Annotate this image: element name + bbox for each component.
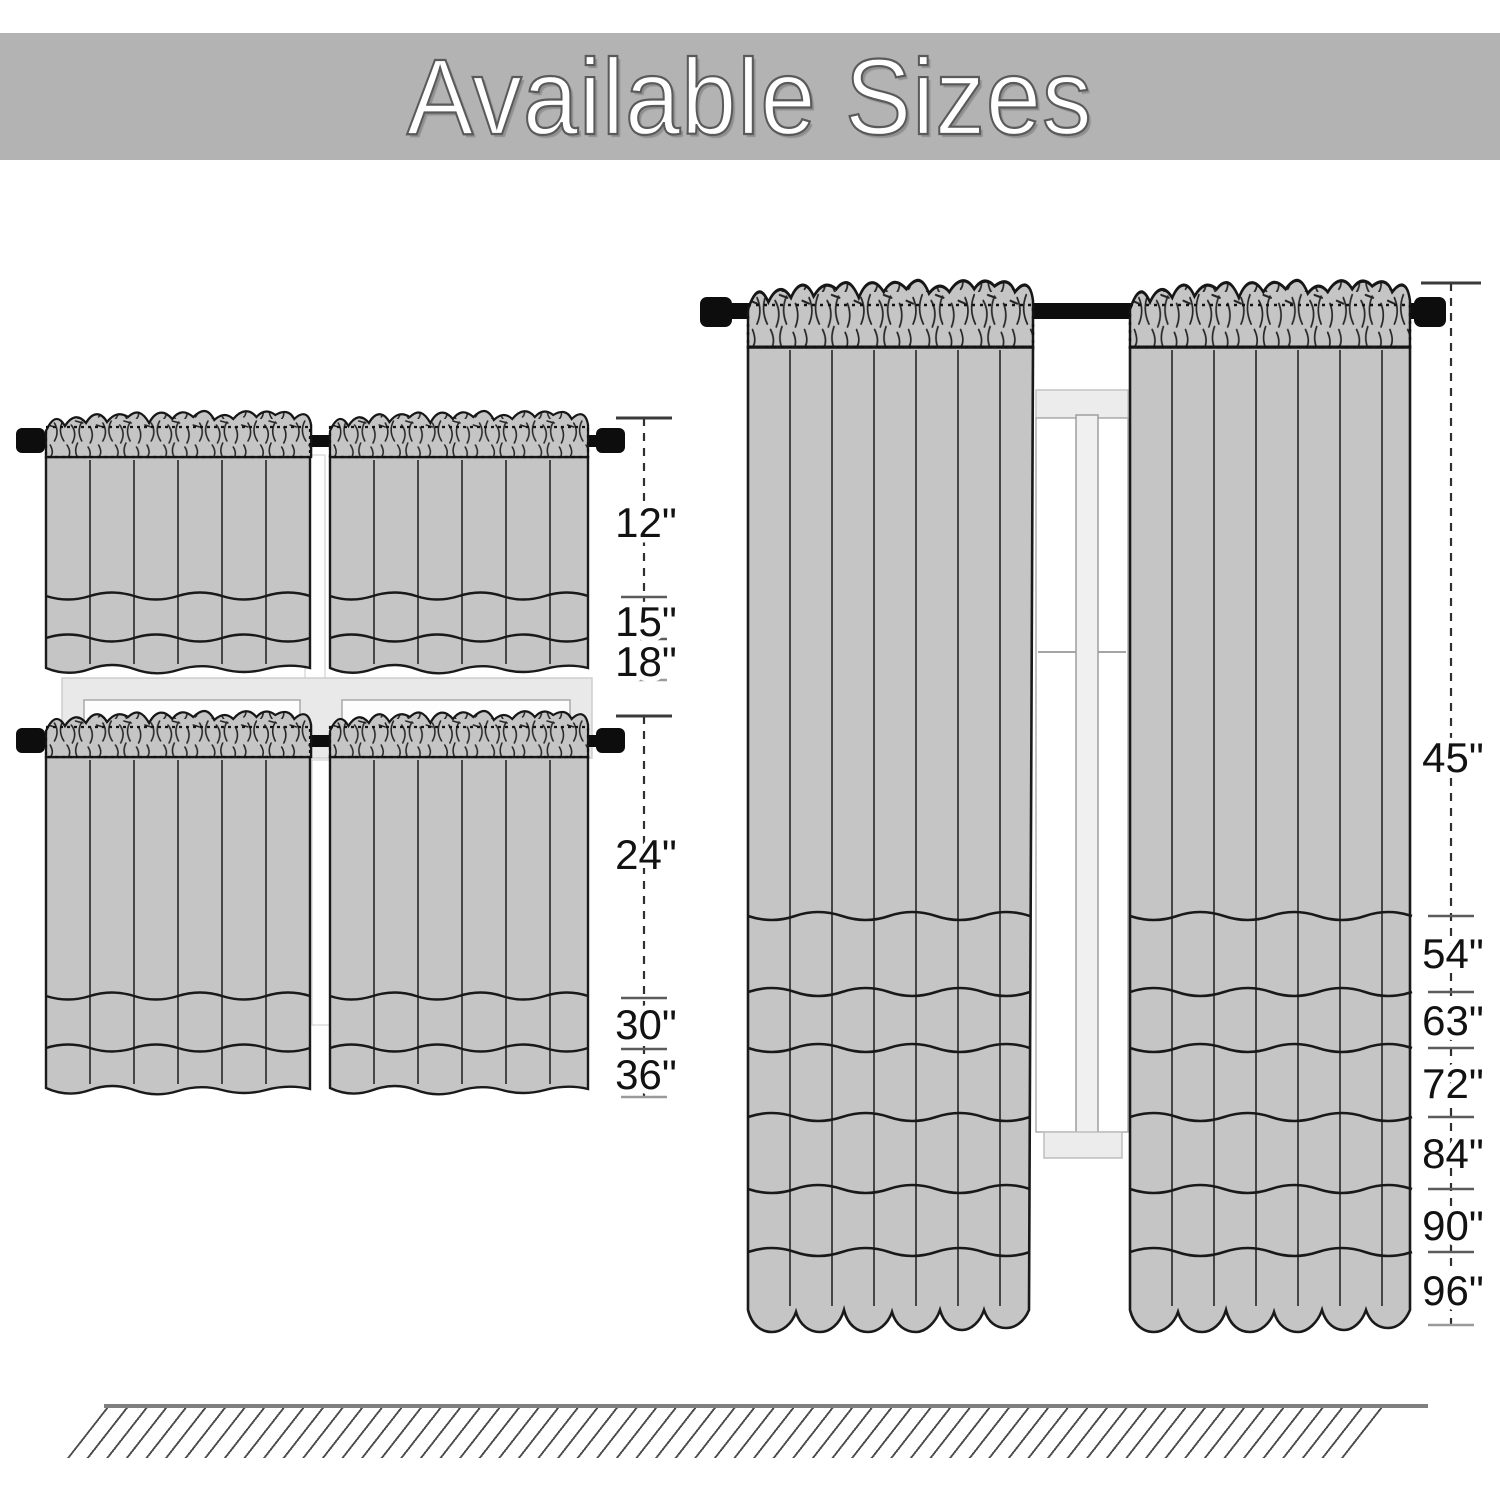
size-scale-panels: 45" 54" 63" 72" 84" 90" 96": [1421, 283, 1484, 1325]
size-label: 12": [615, 499, 677, 546]
rod-finial: [16, 428, 45, 453]
curtain-panel: [748, 280, 1033, 1332]
rod-finial: [700, 297, 732, 327]
size-label: 96": [1422, 1267, 1484, 1314]
size-scale-tier-top: 12" 15" 18": [615, 418, 677, 685]
rod-pocket-ruffle: [46, 411, 311, 457]
rod-pocket-ruffle: [748, 280, 1033, 347]
rod-finial: [16, 728, 45, 753]
size-scale-tier-bottom: 24" 30" 36": [615, 716, 677, 1098]
curtain-panel: [330, 411, 588, 673]
rod-finial: [596, 728, 625, 753]
rod-pocket-ruffle: [1130, 280, 1410, 347]
window-pane-gap-lower: [312, 760, 331, 1025]
rod-finial: [596, 428, 625, 453]
floor-hatching: [67, 1408, 1390, 1458]
size-label: 90": [1422, 1202, 1484, 1249]
size-label: 45": [1422, 734, 1484, 781]
size-label: 54": [1422, 930, 1484, 977]
size-label: 36": [615, 1051, 677, 1098]
size-label: 72": [1422, 1060, 1484, 1107]
window-frame-right: [1036, 390, 1128, 1158]
window-mullion: [1076, 415, 1098, 1135]
curtain-panel: [330, 711, 588, 1094]
curtain-panel: [46, 411, 311, 673]
size-label: 24": [615, 831, 677, 878]
window-bottom-rail: [1044, 1132, 1122, 1158]
rod-finial: [1414, 297, 1446, 327]
window-top-rail: [1036, 390, 1128, 418]
size-label: 63": [1422, 997, 1484, 1044]
curtain-panel: [1130, 280, 1412, 1332]
size-label: 30": [615, 1001, 677, 1048]
size-chart-page: Available Sizes: [0, 0, 1500, 1500]
curtain-size-diagram: 12" 15" 18" 24" 30" 36" 45" 54": [0, 0, 1500, 1500]
size-label: 18": [615, 638, 677, 685]
size-label: 84": [1422, 1130, 1484, 1177]
curtain-panel: [46, 711, 311, 1094]
rod-pocket-ruffle: [330, 411, 588, 457]
